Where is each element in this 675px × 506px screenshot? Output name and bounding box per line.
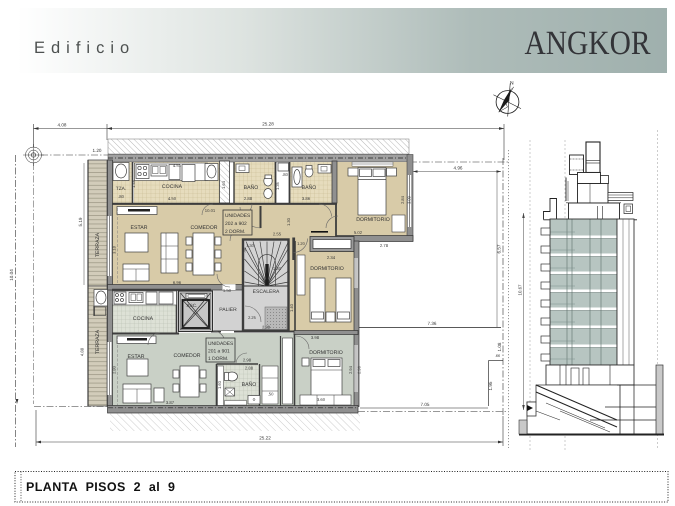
svg-text:3.86: 3.86 xyxy=(302,196,311,201)
svg-text:1.60: 1.60 xyxy=(217,380,222,389)
svg-text:1.48: 1.48 xyxy=(131,179,136,188)
svg-text:DORMITORIO: DORMITORIO xyxy=(310,266,344,272)
svg-text:2.88: 2.88 xyxy=(245,366,254,371)
svg-text:1.20: 1.20 xyxy=(297,241,306,246)
svg-text:2.28: 2.28 xyxy=(262,325,271,330)
svg-text:.95: .95 xyxy=(242,246,247,252)
svg-text:N: N xyxy=(510,81,514,87)
svg-text:10.67: 10.67 xyxy=(518,284,523,296)
svg-text:1.40: 1.40 xyxy=(289,303,294,312)
svg-text:1.35: 1.35 xyxy=(275,181,280,190)
svg-text:UNIDADES: UNIDADES xyxy=(225,213,251,219)
svg-text:2.80: 2.80 xyxy=(112,365,117,374)
svg-text:BAÑO: BAÑO xyxy=(242,381,257,388)
svg-text:2.25: 2.25 xyxy=(248,315,257,320)
svg-text:2.55: 2.55 xyxy=(273,232,282,237)
svg-text:3.18: 3.18 xyxy=(112,245,117,254)
svg-text:DORMITORIO: DORMITORIO xyxy=(309,350,343,356)
svg-text:3.87: 3.87 xyxy=(166,400,175,405)
svg-text:4.50: 4.50 xyxy=(168,196,177,201)
svg-text:1.20: 1.20 xyxy=(93,148,102,153)
svg-text:7.36: 7.36 xyxy=(428,321,437,326)
svg-text:25.28: 25.28 xyxy=(262,122,274,127)
svg-text:2.88: 2.88 xyxy=(244,196,253,201)
svg-text:COMEDOR: COMEDOR xyxy=(173,353,200,359)
svg-text:1.30: 1.30 xyxy=(286,217,291,226)
svg-text:10.01: 10.01 xyxy=(205,208,216,213)
svg-text:4.96: 4.96 xyxy=(454,166,463,171)
svg-text:ESTAR: ESTAR xyxy=(131,225,148,231)
svg-text:202 a 902: 202 a 902 xyxy=(225,221,247,227)
svg-text:.66: .66 xyxy=(495,354,500,358)
svg-text:ESTAR: ESTAR xyxy=(128,354,145,360)
svg-text:25.22: 25.22 xyxy=(259,436,271,441)
svg-text:2.84: 2.84 xyxy=(400,195,405,204)
svg-text:1.30: 1.30 xyxy=(246,243,255,248)
svg-text:PALIER: PALIER xyxy=(219,307,237,313)
svg-text:5.19: 5.19 xyxy=(78,217,83,226)
svg-text:ESCALERA: ESCALERA xyxy=(253,289,280,295)
svg-text:ASC.: ASC. xyxy=(187,303,198,308)
svg-text:BAÑO: BAÑO xyxy=(244,184,259,191)
svg-text:2.34: 2.34 xyxy=(327,255,336,260)
svg-text:TERRAZA: TERRAZA xyxy=(95,232,101,257)
svg-text:ANGKOR: ANGKOR xyxy=(525,25,651,62)
svg-text:4.08: 4.08 xyxy=(58,123,67,128)
svg-text:COCINA: COCINA xyxy=(162,184,183,190)
svg-text:7.05: 7.05 xyxy=(421,402,430,407)
svg-text:2.96: 2.96 xyxy=(357,365,362,374)
svg-text:1.08: 1.08 xyxy=(497,342,502,351)
svg-text:COMEDOR: COMEDOR xyxy=(190,225,217,231)
svg-text:2.94: 2.94 xyxy=(348,365,353,374)
svg-text:1.30: 1.30 xyxy=(273,266,282,271)
svg-text:.50: .50 xyxy=(268,392,274,397)
svg-text:2.98: 2.98 xyxy=(243,358,252,363)
svg-text:2.78: 2.78 xyxy=(380,243,389,248)
svg-text:TZA.: TZA. xyxy=(116,186,126,192)
svg-text:.80: .80 xyxy=(118,194,124,199)
svg-text:6.96: 6.96 xyxy=(173,280,182,285)
svg-text:UNIDADES: UNIDADES xyxy=(208,341,234,347)
svg-text:4.51: 4.51 xyxy=(173,163,182,168)
svg-text:3.98: 3.98 xyxy=(311,335,320,340)
svg-text:6.57: 6.57 xyxy=(497,244,502,253)
svg-text:BAÑO: BAÑO xyxy=(302,184,317,191)
svg-text:1 DORM.: 1 DORM. xyxy=(208,356,228,362)
svg-text:1.64: 1.64 xyxy=(221,180,226,189)
svg-text:3.09: 3.09 xyxy=(407,195,412,204)
svg-text:PLANTA PISOS 2 al 9: PLANTA PISOS 2 al 9 xyxy=(26,480,175,494)
svg-text:Edificio: Edificio xyxy=(34,39,135,57)
svg-text:4.88: 4.88 xyxy=(80,347,85,356)
svg-text:DORMITORIO: DORMITORIO xyxy=(356,217,390,223)
svg-text:2 DORM.: 2 DORM. xyxy=(225,229,245,235)
svg-text:TERRAZA: TERRAZA xyxy=(95,329,101,354)
svg-text:201 a 901: 201 a 901 xyxy=(208,349,230,355)
svg-text:COCINA: COCINA xyxy=(133,316,154,322)
svg-text:.80: .80 xyxy=(282,172,288,177)
svg-text:1.95: 1.95 xyxy=(488,381,493,390)
svg-text:5.02: 5.02 xyxy=(354,230,363,235)
svg-text:1.50: 1.50 xyxy=(223,288,232,293)
svg-text:10.04: 10.04 xyxy=(9,269,14,281)
svg-text:3.60: 3.60 xyxy=(317,397,326,402)
